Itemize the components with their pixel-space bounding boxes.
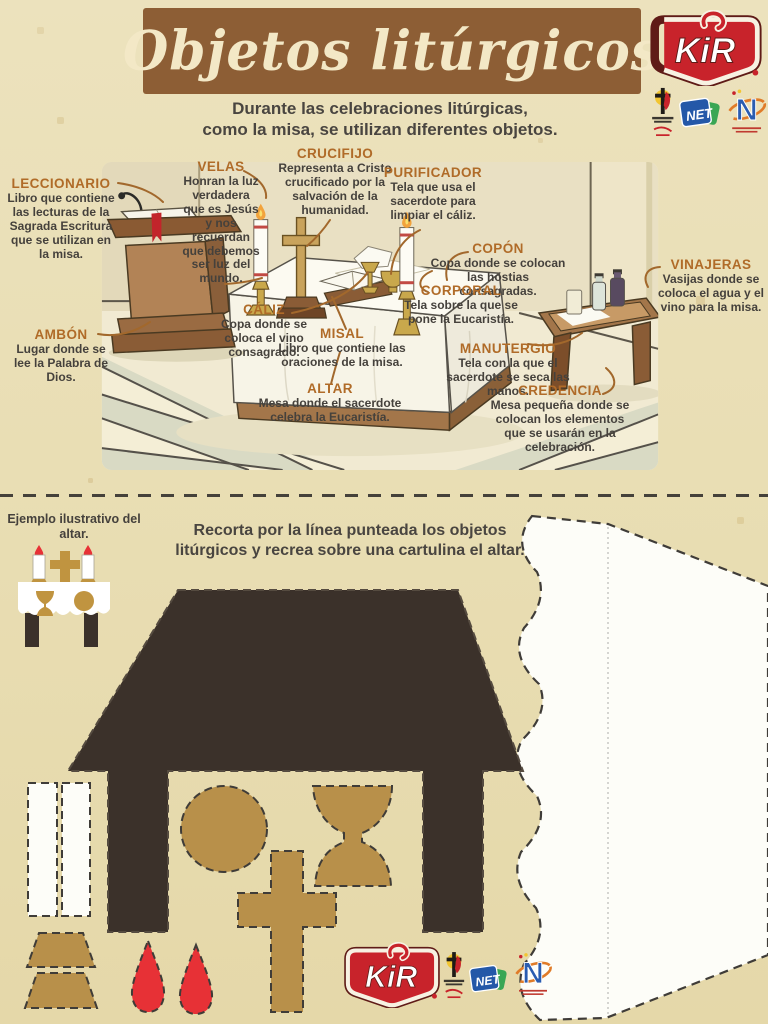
paper-speckles	[0, 0, 1, 1]
cut-line-separator	[0, 494, 768, 497]
label-velas: VELAS Honran la luz verdadera que es Jes…	[180, 159, 262, 286]
kir-logo-text: KiR	[365, 961, 417, 994]
label-purificador: PURIFICADOR Tela que usa el sacerdote pa…	[374, 165, 492, 223]
label-desc: Tela sobre la que se pone la Eucaristía.	[404, 299, 518, 327]
label-desc: Vasijas donde se coloca el agua y el vin…	[656, 273, 766, 315]
cutout-host-circle	[181, 786, 267, 872]
label-title: VELAS	[180, 159, 262, 174]
net-logo: NET	[679, 94, 722, 134]
label-desc: Lugar donde se lee la Palabra de Dios.	[8, 343, 114, 385]
cutout-chalice	[313, 786, 392, 886]
n-program-logo: N	[512, 950, 554, 1000]
label-title: CÁLIZ	[213, 302, 315, 317]
label-title: VINAJERAS	[656, 257, 766, 272]
jfm-logo	[650, 86, 676, 142]
worksheet-page: Objetos litúrgicos KiR NET N	[0, 0, 768, 1024]
label-title: CORPORAL	[404, 283, 518, 298]
glass	[567, 290, 582, 314]
label-title: ALTAR	[250, 381, 410, 396]
tablecloth	[18, 582, 110, 615]
label-credencia: CREDENCIA Mesa pequeña donde se colocan …	[488, 383, 632, 455]
cutout-base-trapezoid-1	[27, 933, 95, 967]
cutout-candle-2	[62, 783, 90, 916]
n-logo-text: N	[735, 93, 757, 127]
label-misal: MISAL Libro que contiene las oraciones d…	[260, 326, 424, 370]
kir-logo-text: KiR	[675, 31, 736, 70]
cutout-tablecloth	[517, 516, 768, 1020]
label-ambon: AMBÓN Lugar donde se lee la Palabra de D…	[8, 327, 114, 385]
partner-logos-bottom: NET N	[442, 950, 554, 1010]
cutout-flame-2	[180, 945, 212, 1014]
svg-text:N: N	[522, 957, 544, 990]
label-leccionario: LECCIONARIO Libro que contiene las lectu…	[6, 176, 116, 262]
label-desc: Libro que contiene las oraciones de la m…	[260, 342, 424, 370]
n-program-logo: N	[725, 86, 768, 138]
cutout-flame-1	[132, 941, 164, 1012]
label-title: MANUTERGIO	[440, 341, 576, 356]
cutout-candle-1	[28, 783, 57, 916]
label-desc: Libro que contiene las lecturas de la Sa…	[6, 192, 116, 262]
partner-logos-top: NET N	[650, 86, 768, 142]
kir-logo-footer: KiR	[343, 942, 441, 1008]
page-title: Objetos litúrgicos	[123, 19, 661, 82]
jfm-logo	[442, 950, 466, 1004]
label-desc: Honran la luz verdadera que es Jesús y n…	[180, 175, 262, 286]
registered-mark	[753, 70, 759, 76]
label-title: CRUCIFIJO	[276, 146, 394, 161]
label-title: COPÓN	[430, 241, 566, 256]
label-title: AMBÓN	[8, 327, 114, 342]
cutout-base-trapezoid-2	[25, 973, 97, 1008]
label-title: PURIFICADOR	[374, 165, 492, 180]
example-altar-illustration	[8, 543, 130, 651]
label-desc: Tela que usa el sacerdote para limpiar e…	[374, 181, 492, 223]
label-title: LECCIONARIO	[6, 176, 116, 191]
subtitle: Durante las celebraciones litúrgicas, co…	[110, 98, 650, 141]
label-vinajeras: VINAJERAS Vasijas donde se coloca el agu…	[656, 257, 766, 315]
kir-logo: KiR	[648, 10, 764, 86]
label-title: MISAL	[260, 326, 424, 341]
label-title: CREDENCIA	[488, 383, 632, 398]
header-banner: Objetos litúrgicos	[143, 8, 641, 94]
label-corporal: CORPORAL Tela sobre la que se pone la Eu…	[404, 283, 518, 327]
net-logo: NET	[469, 962, 509, 998]
host-icon	[74, 591, 94, 611]
label-desc: Mesa pequeña donde se colocan los elemen…	[488, 399, 632, 455]
label-altar: ALTAR Mesa donde el sacerdote celebra la…	[250, 381, 410, 425]
label-desc: Mesa donde el sacerdote celebra la Eucar…	[250, 397, 410, 425]
